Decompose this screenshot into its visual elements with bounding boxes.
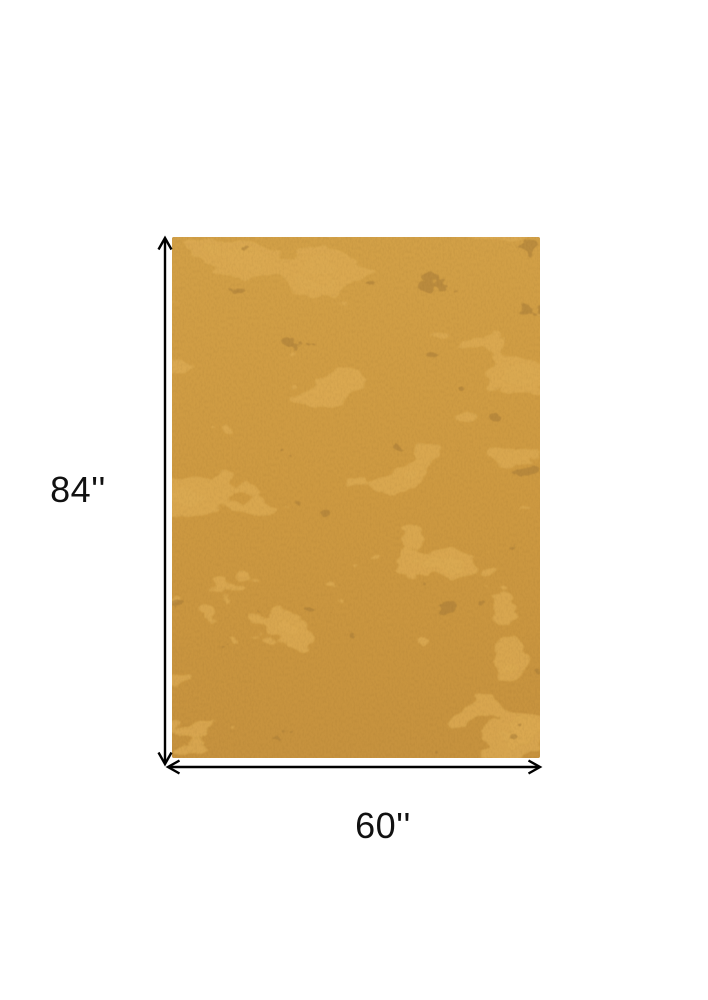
width-dimension-arrow (168, 761, 540, 774)
arrow-down-icon (159, 753, 172, 765)
arrow-right-icon (529, 761, 541, 774)
arrow-left-icon (168, 761, 180, 774)
product-dimension-diagram: 84'' 60'' (0, 0, 708, 1000)
rug-texture (172, 237, 540, 758)
height-dimension-arrow (159, 238, 172, 764)
height-dimension-label: 84'' (23, 467, 133, 513)
arrow-up-icon (159, 238, 172, 250)
rug-image (172, 237, 540, 758)
width-dimension-label: 60'' (328, 803, 438, 849)
